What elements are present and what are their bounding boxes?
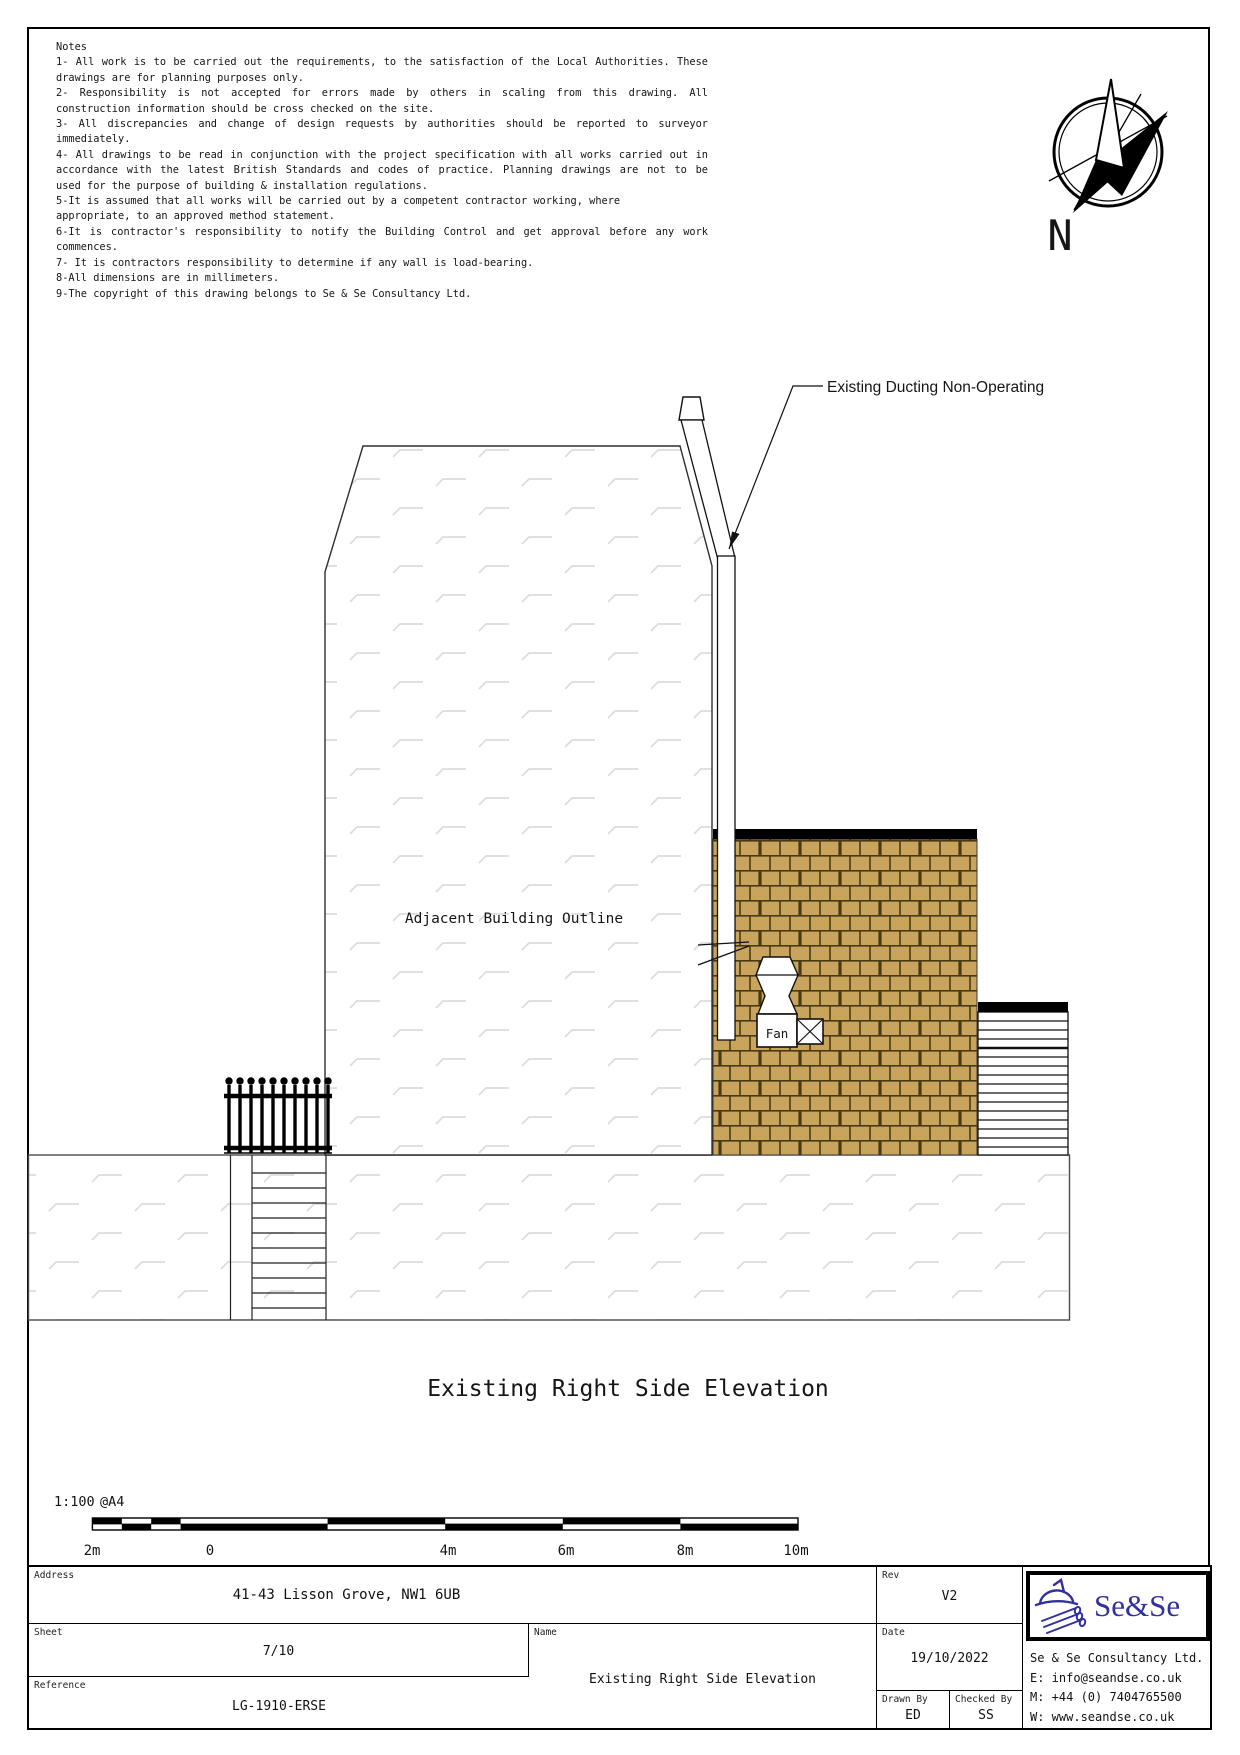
name-cell: Name Existing Right Side Elevation <box>529 1624 877 1730</box>
brick-wall <box>713 829 977 1155</box>
checked-by-cell: Checked By SS <box>950 1691 1023 1730</box>
tick-label: 4m <box>440 1543 457 1559</box>
rev-cell: Rev V2 <box>877 1567 1023 1624</box>
sheet-label: Sheet <box>34 1627 63 1638</box>
name-value: Existing Right Side Elevation <box>529 1672 876 1687</box>
scale-bar-bottom-segments <box>122 1524 798 1530</box>
scale-bar-top-segments <box>92 1518 680 1524</box>
adjacent-building-outline <box>325 446 712 1155</box>
company-name: Se & Se Consultancy Ltd. <box>1030 1649 1203 1669</box>
duct-leader <box>729 386 823 549</box>
address-value: 41-43 Lisson Grove, NW1 6UB <box>0 1587 770 1603</box>
company-logo: Se&Se <box>1026 1571 1210 1641</box>
company-mobile: M: +44 (0) 7404765500 <box>1030 1688 1203 1708</box>
reference-label: Reference <box>34 1680 85 1691</box>
date-cell: Date 19/10/2022 <box>877 1624 1023 1691</box>
duct-damper-box <box>797 1019 823 1044</box>
company-contact: Se & Se Consultancy Ltd. E: info@seandse… <box>1030 1649 1203 1727</box>
tick-label: 0 <box>206 1543 214 1559</box>
tick-label: 8m <box>677 1543 694 1559</box>
date-value: 19/10/2022 <box>877 1651 1022 1666</box>
fan-label: Fan <box>766 1026 789 1041</box>
view-title: Existing Right Side Elevation <box>427 1376 829 1402</box>
company-panel: Se&Se Se & Se Consultancy Ltd. E: info@s… <box>1023 1567 1212 1730</box>
fan-silencer <box>756 957 798 1014</box>
drawing-sheet: Notes 1- All work is to be carried out t… <box>0 0 1240 1755</box>
adjacent-building-label: Adjacent Building Outline <box>405 911 623 927</box>
logo-wordmark: Se&Se <box>1094 1588 1180 1624</box>
duct-label: Existing Ducting Non-Operating <box>827 379 1044 396</box>
checked-by-value: SS <box>950 1708 1022 1723</box>
north-arrow-icon: N <box>1047 79 1168 260</box>
company-web: W: www.seandse.co.uk <box>1030 1708 1203 1728</box>
north-label: N <box>1047 211 1072 260</box>
checked-by-label: Checked By <box>955 1694 1012 1705</box>
reference-cell: Reference LG-1910-ERSE <box>29 1677 529 1730</box>
elevation-drawing: Fan Existing Ducting Non-Operating Adjac… <box>0 0 1240 1755</box>
tick-label: 2m <box>84 1543 101 1559</box>
scale-ratio: 1:100 <box>54 1494 95 1510</box>
drawn-by-label: Drawn By <box>882 1694 928 1705</box>
sheet-cell: Sheet 7/10 <box>29 1624 529 1677</box>
sheet-value: 7/10 <box>29 1644 528 1659</box>
rev-label: Rev <box>882 1570 899 1581</box>
address-label: Address <box>34 1570 74 1581</box>
name-label: Name <box>534 1627 557 1638</box>
scale-paper: @A4 <box>100 1494 124 1510</box>
address-cell: Address 41-43 Lisson Grove, NW1 6UB <box>29 1567 877 1624</box>
tick-label: 10m <box>783 1543 808 1559</box>
drawn-by-cell: Drawn By ED <box>877 1691 950 1730</box>
ground-outline <box>29 1155 1070 1320</box>
company-email: E: info@seandse.co.uk <box>1030 1669 1203 1689</box>
title-block: Address 41-43 Lisson Grove, NW1 6UB Rev … <box>27 1565 1212 1730</box>
scale-bar-ticks: 2m 0 4m 6m 8m 10m <box>84 1543 809 1559</box>
rev-value: V2 <box>877 1589 1022 1604</box>
date-label: Date <box>882 1627 905 1638</box>
scale-bar: 1:100 @A4 2m 0 4m <box>54 1494 809 1559</box>
railing-fence <box>224 1077 332 1153</box>
leader-arrowhead <box>729 532 740 550</box>
tick-label: 6m <box>558 1543 575 1559</box>
drawn-by-value: ED <box>877 1708 949 1723</box>
reference-value: LG-1910-ERSE <box>29 1699 529 1714</box>
louver-structure <box>978 1002 1068 1155</box>
parapet-band <box>713 829 977 840</box>
hard-hat-pipes-icon <box>1030 1577 1092 1635</box>
